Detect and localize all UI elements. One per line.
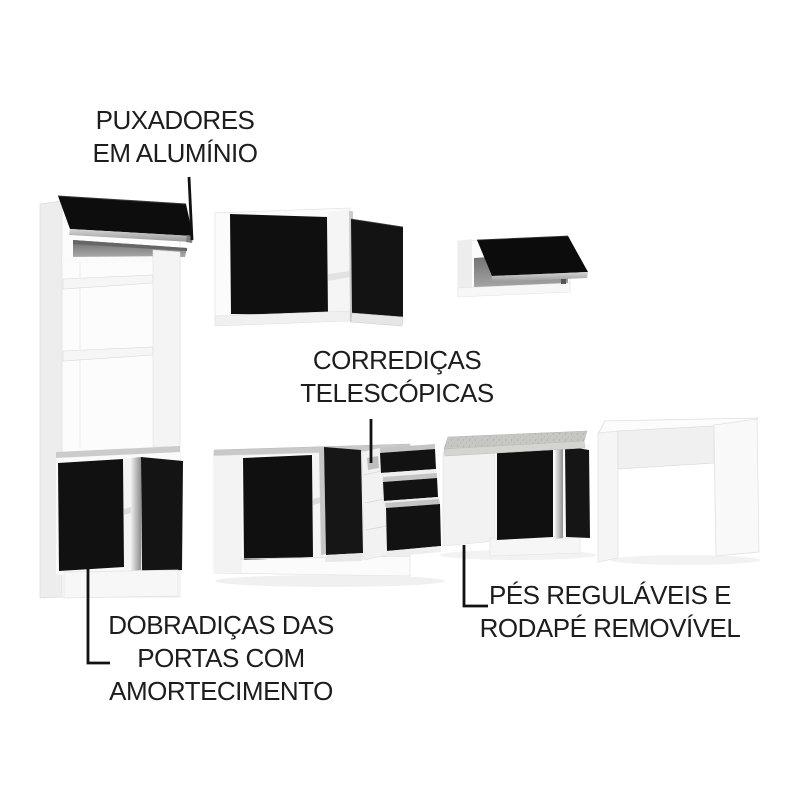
- telescopic-slide: [367, 456, 379, 470]
- callout-hinges-line1: DOBRADIÇAS DAS: [91, 609, 351, 642]
- drawer-front-top: [380, 449, 436, 473]
- desk-table: [598, 418, 760, 565]
- open-door: [351, 219, 403, 317]
- callout-handles: PUXADORES EM ALUMÍNIO: [75, 104, 275, 170]
- cabinet-interior: [328, 210, 350, 317]
- tall-oven-cabinet: [40, 196, 193, 598]
- drawer-front-middle: [383, 478, 438, 501]
- cabinet-left-side: [443, 448, 495, 546]
- desk-left-leg: [598, 431, 618, 562]
- drawer-front-bottom: [386, 504, 441, 551]
- callout-handles-line2: EM ALUMÍNIO: [75, 137, 275, 170]
- closed-door: [497, 447, 553, 540]
- wall-cabinet-double-door: [215, 208, 403, 326]
- lower-left-door: [58, 459, 124, 571]
- flip-up-door-open: [477, 236, 588, 276]
- callout-slides-line1: CORREDIÇAS: [287, 344, 507, 377]
- sink-base-cabinet: [440, 431, 596, 560]
- floor-shadow: [610, 555, 760, 565]
- desk-apron: [618, 426, 714, 469]
- open-door: [324, 447, 363, 555]
- lower-right-door-open: [141, 457, 183, 572]
- handle-nub: [561, 279, 566, 284]
- desk-right-leg: [714, 419, 759, 556]
- door-aluminum-edge: [131, 457, 141, 571]
- callout-slides: CORREDIÇAS TELESCÓPICAS: [287, 344, 507, 410]
- callout-hinges-line2: PORTAS COM: [91, 642, 351, 675]
- closed-door: [230, 214, 328, 315]
- plinth: [64, 570, 178, 598]
- closed-door: [243, 455, 313, 560]
- callout-hinges-line3: AMORTECIMENTO: [91, 675, 351, 708]
- base-cabinet-drawers: [214, 444, 445, 587]
- right-stile: [153, 250, 180, 447]
- door-aluminum-edge: [555, 446, 563, 539]
- wall-cabinet-flip-up: [458, 236, 588, 297]
- callout-feet-line2: RODAPÉ REMOVÍVEL: [470, 612, 750, 645]
- left-stile: [214, 455, 242, 573]
- callout-handles-line1: PUXADORES: [75, 104, 275, 137]
- callout-hinges: DOBRADIÇAS DAS PORTAS COM AMORTECIMENTO: [91, 609, 351, 708]
- floor-shadow: [215, 575, 445, 587]
- callout-feet: PÉS REGULÁVEIS E RODAPÉ REMOVÍVEL: [470, 579, 750, 645]
- callout-feet-line1: PÉS REGULÁVEIS E: [470, 579, 750, 612]
- kitchen-features-diagram: PUXADORES EM ALUMÍNIO CORREDIÇAS TELESCÓ…: [0, 0, 800, 800]
- open-door: [565, 446, 590, 538]
- callout-slides-line2: TELESCÓPICAS: [287, 377, 507, 410]
